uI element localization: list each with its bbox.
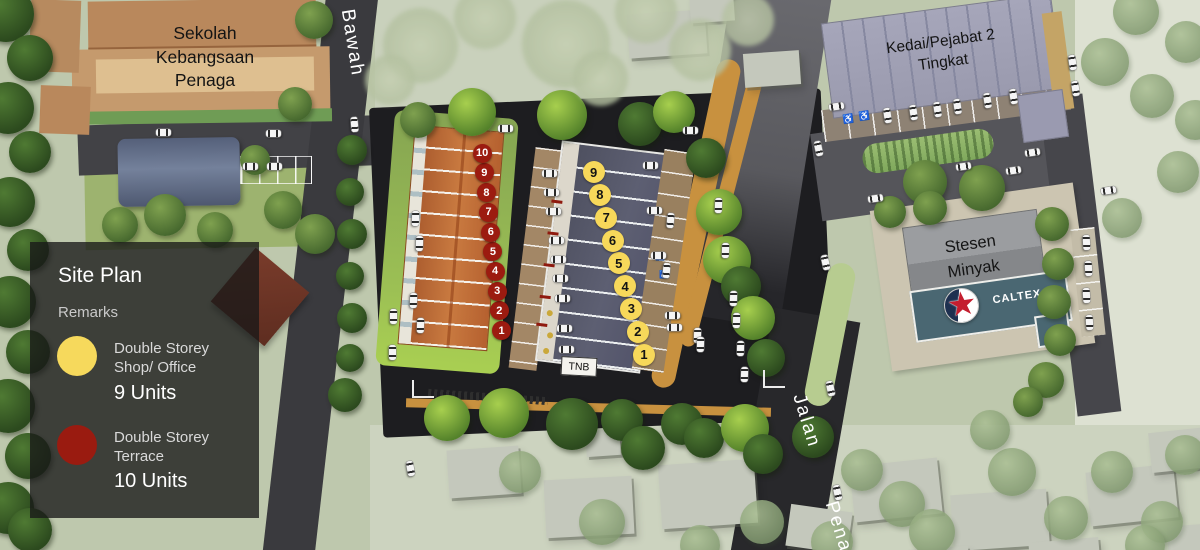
car <box>156 129 171 136</box>
road-marking <box>412 380 434 398</box>
tree <box>295 1 333 39</box>
school-label: Sekolah Kebangsaan Penaga <box>139 22 271 93</box>
tree <box>499 451 541 493</box>
car <box>546 208 561 215</box>
tree <box>9 131 51 173</box>
school-wing-left <box>39 85 91 135</box>
car <box>1082 234 1090 249</box>
tree <box>278 87 312 121</box>
tree <box>684 418 724 458</box>
terrace-unit-badge: 3 <box>488 282 507 301</box>
kedai-annex <box>1017 89 1069 143</box>
car <box>714 197 722 212</box>
tree <box>336 262 364 290</box>
legend-item-terrace-units: 10 Units <box>114 470 187 493</box>
tree <box>336 178 364 206</box>
car <box>1085 314 1093 329</box>
car <box>551 256 566 263</box>
terrace-unit-badge: 7 <box>479 203 498 222</box>
tree <box>479 388 529 438</box>
car <box>647 207 662 214</box>
tree <box>841 449 883 491</box>
tree <box>7 35 53 81</box>
car <box>389 345 396 360</box>
tree <box>1165 21 1200 63</box>
car <box>350 116 358 132</box>
car <box>666 212 674 228</box>
car <box>732 312 740 327</box>
tree <box>959 165 1005 211</box>
school-hall <box>117 137 240 207</box>
tree <box>365 55 415 105</box>
terrace-unit-badge: 6 <box>481 223 500 242</box>
tree <box>546 398 598 450</box>
car <box>828 101 844 110</box>
terrace-roof-ridge <box>447 130 467 348</box>
car <box>498 125 513 132</box>
tree <box>1165 435 1200 475</box>
tree <box>1037 285 1071 319</box>
tree <box>264 191 302 229</box>
wheelchair-icon: ♿ <box>842 113 855 125</box>
tree <box>240 145 270 175</box>
tree <box>537 90 587 140</box>
car <box>411 210 419 225</box>
shop-unit-badge: 9 <box>583 161 605 183</box>
legend-item-terrace-label: Double Storey Terrace <box>114 428 209 466</box>
legend-subtitle: Remarks <box>58 304 118 321</box>
tree <box>1102 198 1142 238</box>
car <box>740 366 748 381</box>
car <box>549 237 564 244</box>
car <box>557 325 572 332</box>
tree <box>328 378 362 412</box>
tree <box>909 509 955 550</box>
tree <box>1157 151 1199 193</box>
terrace-unit-badge: 8 <box>477 183 496 202</box>
shop-unit-badge: 8 <box>589 184 611 206</box>
car <box>555 295 570 302</box>
car <box>1067 54 1076 70</box>
car <box>267 163 282 170</box>
car <box>1070 80 1079 96</box>
tree <box>1042 248 1074 280</box>
legend-item-shop-label: Double Storey Shop/ Office <box>114 339 209 377</box>
car <box>867 193 883 202</box>
car <box>651 252 666 259</box>
legend-title: Site Plan <box>58 264 142 288</box>
terrace-unit-badge: 4 <box>486 262 505 281</box>
tree <box>0 177 35 227</box>
legend-text-line: Double Storey <box>114 428 209 447</box>
terrace-unit-badge: 10 <box>473 144 492 163</box>
tree <box>579 499 625 545</box>
terrace-unit-badge: 2 <box>490 301 509 320</box>
site-plan-canvas: ♿ ♿ ★ CALTEX ♿ ♿ TNB <box>0 0 1200 550</box>
car <box>665 312 680 319</box>
house <box>950 489 1050 550</box>
car <box>266 130 281 137</box>
car <box>1008 88 1017 104</box>
legend-item-shop-units: 9 Units <box>114 382 176 405</box>
tree <box>621 426 665 470</box>
tree <box>400 102 436 138</box>
tree <box>424 395 470 441</box>
legend-swatch-shop <box>57 336 97 376</box>
shop-unit-badge: 7 <box>595 207 617 229</box>
car <box>1084 260 1092 275</box>
car <box>683 127 698 134</box>
shop-unit-badge: 1 <box>633 344 655 366</box>
legend-text-line: Double Storey <box>114 339 209 358</box>
tree <box>743 434 783 474</box>
car <box>908 104 917 120</box>
car <box>721 242 729 257</box>
tnb-label: TNB <box>568 360 590 373</box>
car <box>882 107 891 123</box>
tree <box>337 135 367 165</box>
tree <box>913 191 947 225</box>
car <box>409 292 417 307</box>
tree <box>144 194 186 236</box>
tree <box>295 214 335 254</box>
tree <box>1081 38 1129 86</box>
shop-unit-badge: 2 <box>627 321 649 343</box>
tree <box>1035 207 1069 241</box>
car <box>1100 185 1116 194</box>
car <box>955 161 971 170</box>
shop-unit-badge: 6 <box>602 230 624 252</box>
car <box>544 189 559 196</box>
tree <box>102 207 138 243</box>
tree <box>448 88 496 136</box>
car <box>553 275 568 282</box>
car <box>1005 165 1021 174</box>
tree <box>1044 496 1088 540</box>
car <box>662 262 670 278</box>
car <box>643 162 658 169</box>
tree <box>337 303 367 333</box>
car <box>542 170 557 177</box>
car <box>982 92 991 108</box>
car <box>390 309 397 324</box>
tree <box>336 344 364 372</box>
car <box>1024 147 1040 156</box>
wheelchair-icon: ♿ <box>858 110 871 122</box>
car <box>415 235 423 250</box>
car <box>416 317 424 332</box>
house <box>743 50 801 88</box>
tree <box>686 138 726 178</box>
car <box>1082 287 1090 302</box>
tree <box>740 500 784 544</box>
car <box>729 290 737 305</box>
road-marking <box>763 370 785 388</box>
legend-text-line: Shop/ Office <box>114 358 209 377</box>
caltex-star-icon: ★ <box>945 285 979 322</box>
tree <box>1013 387 1043 417</box>
car <box>667 324 682 331</box>
tnb-substation: TNB <box>561 356 598 377</box>
tree <box>669 19 731 81</box>
car <box>243 163 258 170</box>
terrace-unit-badge: 1 <box>492 321 511 340</box>
car <box>952 98 961 114</box>
tree <box>337 219 367 249</box>
car <box>559 346 574 353</box>
legend-text-line: Terrace <box>114 447 209 466</box>
shop-unit-badge: 5 <box>608 252 630 274</box>
tree <box>1091 451 1133 493</box>
tree <box>1044 324 1076 356</box>
car <box>696 336 704 351</box>
legend-swatch-terrace <box>57 425 97 465</box>
tree <box>573 51 628 106</box>
tree <box>0 82 34 134</box>
tree <box>970 410 1010 450</box>
legend-panel: Site Plan Remarks Double Storey Shop/ Of… <box>30 242 259 518</box>
tree <box>1130 74 1174 118</box>
car <box>932 101 941 117</box>
car <box>736 340 744 355</box>
tree <box>988 448 1036 496</box>
